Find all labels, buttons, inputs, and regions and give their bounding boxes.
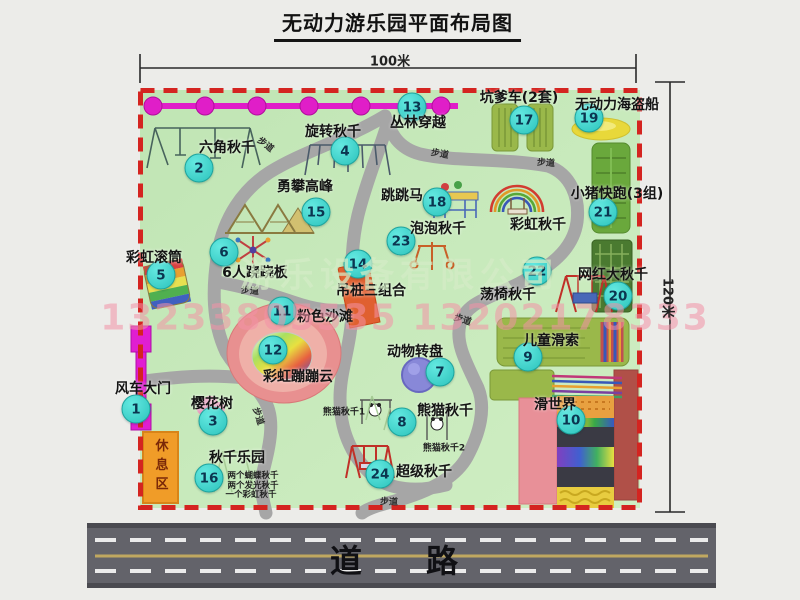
label-swing-park: 秋千乐园 — [209, 447, 265, 467]
badge-15: 15 — [302, 198, 331, 227]
badge-1: 1 — [122, 395, 151, 424]
label-rotating-swing: 旋转秋千 — [305, 121, 361, 141]
badge-2: 2 — [185, 154, 214, 183]
playground-plan: 无动力游乐园平面布局图 100米 120米 游乐设备有限公司 132338055… — [0, 0, 800, 600]
badge-7: 7 — [426, 358, 455, 387]
road-label: 道路 — [330, 536, 522, 582]
label-super-swing: 超级秋千 — [396, 461, 452, 481]
label-rainbow-roller: 彩虹滚筒 — [126, 247, 182, 267]
label-cherry-tree: 樱花树 — [191, 393, 233, 413]
badge-12: 12 — [259, 336, 288, 365]
label-big-swing: 网红大秋千 — [578, 264, 648, 284]
label-bounce-cloud: 彩虹蹦蹦云 — [263, 366, 333, 386]
badge-8: 8 — [388, 408, 417, 437]
badge-18: 18 — [423, 188, 452, 217]
label-climbing-peak: 勇攀高峰 — [277, 176, 333, 196]
label-panda-swing: 熊猫秋千 — [417, 400, 473, 420]
footpath-label-3: 步道 — [537, 155, 556, 169]
watermark-phone: 13233805535 13202178333 — [100, 298, 710, 339]
label-windmill-gate: 风车大门 — [115, 378, 171, 398]
label-jungle-crossing: 丛林穿越 — [390, 112, 446, 132]
footpath-label-7: 步道 — [380, 494, 398, 508]
swing-park-note-3: 一个彩虹秋千 — [225, 488, 276, 500]
label-animal-turntable: 动物转盘 — [387, 341, 443, 361]
sublabel-panda-swing-1: 熊猫秋千1 — [323, 405, 365, 418]
width-dimension-label: 100米 — [370, 51, 410, 70]
label-rainbow-swing: 彩虹秋千 — [510, 214, 566, 234]
badge-17: 17 — [510, 106, 539, 135]
page-title: 无动力游乐园平面布局图 — [274, 7, 521, 42]
badge-24: 24 — [366, 460, 395, 489]
watermark-company: 游乐设备有限公司 — [240, 248, 560, 297]
label-rest-area: 休息区 — [151, 439, 170, 496]
label-pit-cars: 坑爹车(2套) — [480, 87, 559, 107]
height-dimension-label: 120米 — [660, 278, 679, 318]
label-jumping-horse: 跳跳马 — [381, 185, 423, 205]
sublabel-panda-swing-2: 熊猫秋千2 — [423, 441, 465, 454]
label-piggy-run: 小猪快跑(3组) — [571, 183, 664, 203]
badge-16: 16 — [195, 464, 224, 493]
label-bubble-swing: 泡泡秋千 — [410, 218, 466, 238]
label-pirate-ship: 无动力海盗船 — [575, 94, 659, 114]
label-hexagon-swing: 六角秋千 — [199, 137, 255, 157]
label-slide-world: 滑世界 — [534, 394, 576, 414]
